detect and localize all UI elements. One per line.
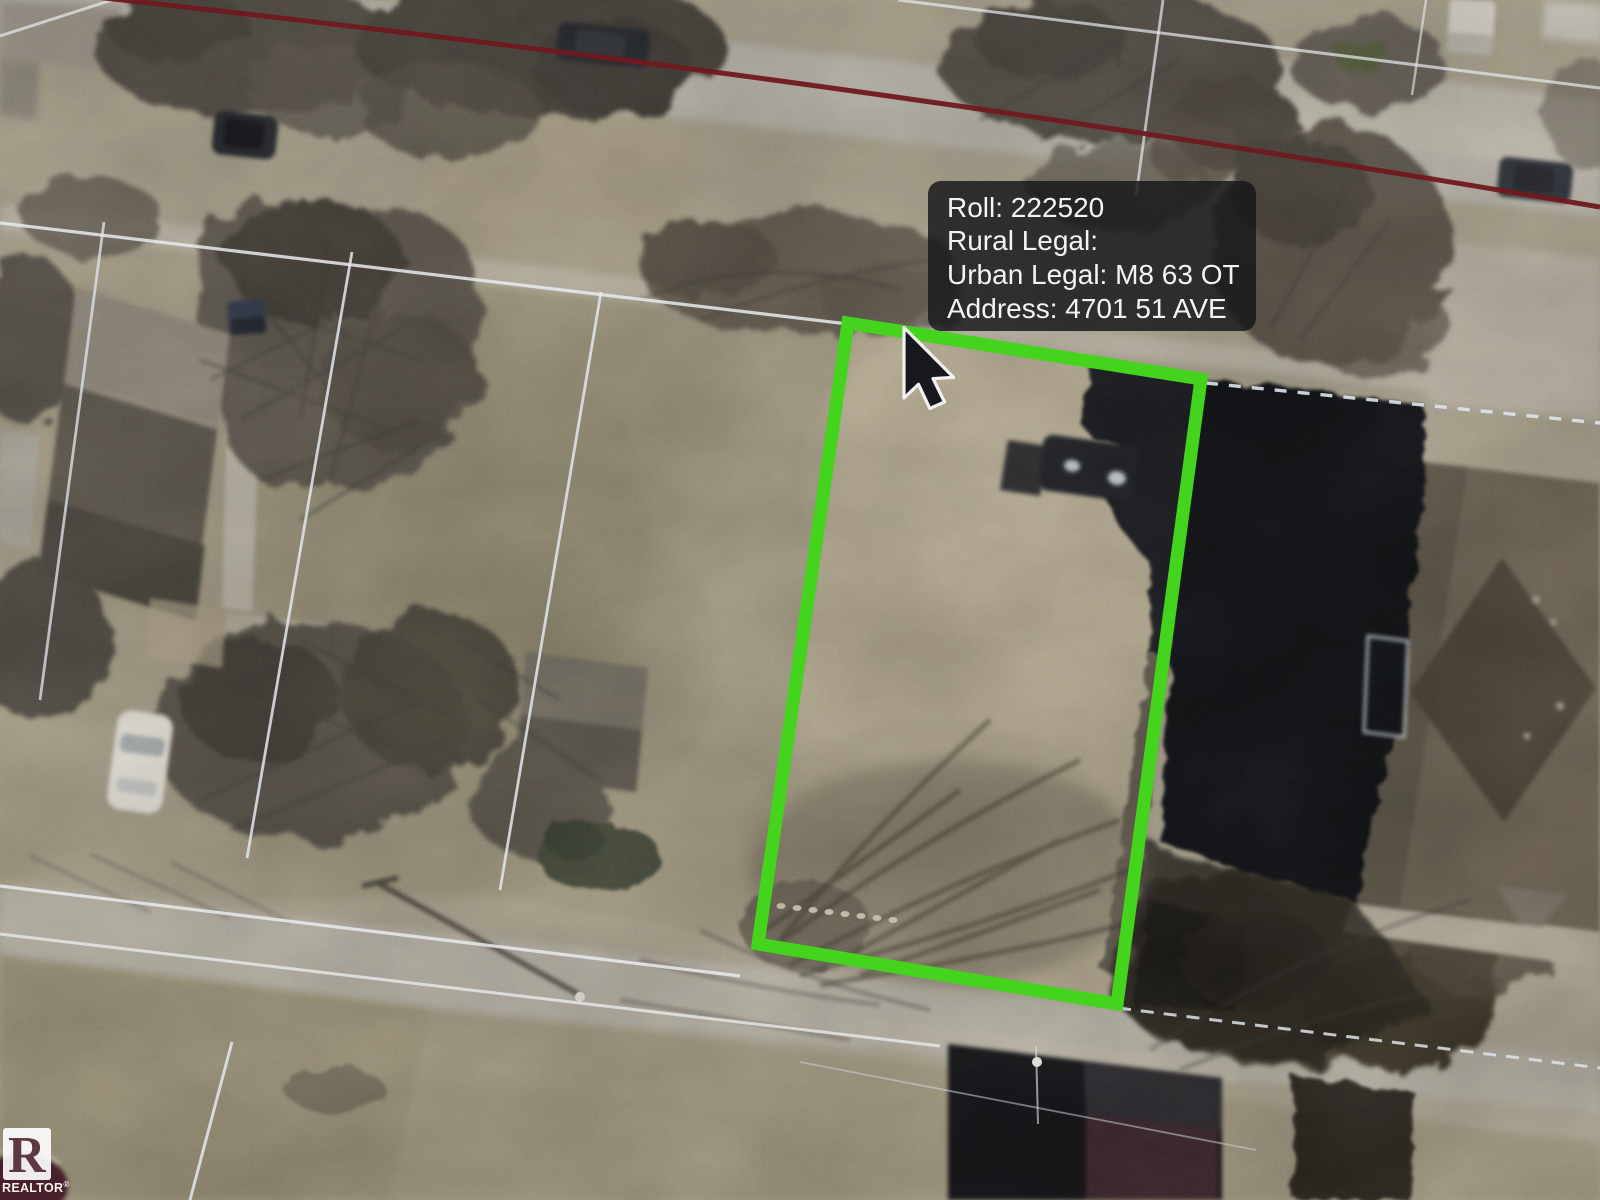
svg-text:REALTOR®: REALTOR® (2, 1180, 70, 1195)
svg-text:R: R (8, 1127, 47, 1184)
svg-text:Roll: 222520: Roll: 222520 (947, 192, 1104, 223)
svg-text:Urban Legal: M8 63 OT: Urban Legal: M8 63 OT (947, 259, 1240, 290)
svg-text:Address: 4701 51 AVE: Address: 4701 51 AVE (947, 293, 1227, 324)
svg-text:Rural Legal:: Rural Legal: (947, 225, 1098, 256)
